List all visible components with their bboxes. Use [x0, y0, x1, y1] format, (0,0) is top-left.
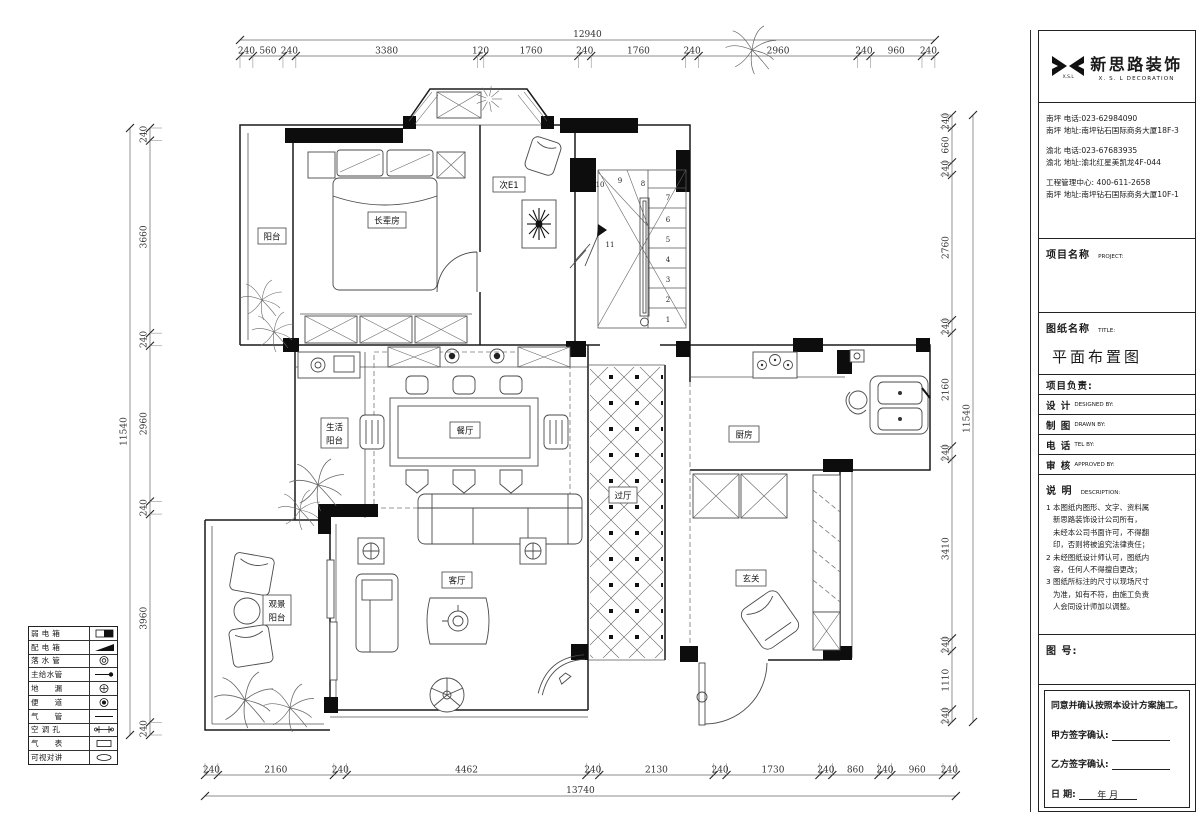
legend-row: 空 调 孔: [29, 723, 117, 737]
note-line: 印，否则将被追究法律责任；: [1046, 539, 1188, 551]
legend-table: 弱 电 箱配 电 箱落 水 管主给水管地 漏便 道气 管空 调 孔气 表可视对讲: [28, 626, 118, 765]
project-label: 项目名称: [1046, 250, 1090, 261]
stair-number: 1: [666, 316, 670, 324]
floor-drain-icon: [89, 682, 117, 695]
room-label-dining: 餐厅: [456, 427, 474, 437]
legend-label: 主给水管: [29, 669, 89, 680]
legend-row: 地 漏: [29, 681, 117, 695]
legend-row: 配 电 箱: [29, 640, 117, 654]
dim-segment: 240: [942, 160, 952, 177]
title-block: X.S.L 新思路装饰 X. S. L DECORATION 南坪 电话:023…: [1038, 30, 1196, 812]
legend-row: 可视对讲: [29, 750, 117, 764]
confirm-statement: 同意并确认按照本设计方案施工。: [1051, 698, 1183, 711]
date-label: 日 期:: [1051, 787, 1076, 800]
dim-segment: 240: [711, 766, 728, 776]
company-name: 新思路装饰: [1090, 51, 1183, 75]
dim-segment: 240: [576, 47, 593, 57]
dim-segment: 2160: [264, 766, 287, 776]
wardrobe: [305, 316, 467, 343]
drawing-name-section: 图纸名称 TITLE: 平面布置图: [1039, 313, 1195, 375]
room-label-balcony-n: 阳台: [263, 232, 280, 243]
stair-number: 2: [666, 296, 670, 304]
room-label-kitchen: 厨房: [735, 430, 752, 441]
armchair-e1: [523, 135, 562, 177]
weak-current-box-icon: [89, 627, 117, 640]
legend-label: 弱 电 箱: [29, 628, 89, 639]
stair-number: 3: [666, 276, 670, 284]
dim-segment: 3660: [140, 225, 150, 248]
title-block-row: 电 话TEL BY:: [1039, 435, 1195, 455]
kitchen-sink: [846, 376, 930, 434]
contact-line: 渝北 电话:023-67683935: [1046, 145, 1188, 157]
figure-number-section: 图 号:: [1039, 635, 1195, 685]
stair-number: 8: [641, 180, 645, 188]
room-label-living: 客厅: [448, 576, 466, 587]
legend-label: 气 表: [29, 738, 89, 749]
dim-segment: 240: [140, 499, 150, 516]
room-label-line: 生活: [326, 422, 344, 433]
title-block-row: 制 图DRAWN BY:: [1039, 415, 1195, 435]
room-label-hall: 过厅: [614, 491, 632, 502]
project-label-en: PROJECT:: [1098, 254, 1123, 260]
contact-group: 渝北 电话:023-67683935渝北 地址:渝北红星美凯龙4F-044: [1046, 145, 1188, 168]
note-line: 2 未经图纸设计师认可，图纸内: [1046, 552, 1188, 564]
date-line[interactable]: 年 月: [1079, 788, 1137, 800]
row-label-en: DESIGNED BY:: [1074, 402, 1113, 408]
ac-hole-icon: [89, 724, 117, 737]
dim-total: 11540: [963, 404, 973, 433]
dim-segment: 240: [140, 720, 150, 737]
gas-meter-icon: [89, 737, 117, 750]
figure-no-label: 图 号:: [1046, 646, 1077, 657]
drawing-label: 图纸名称: [1046, 324, 1090, 335]
party-b-signature-line[interactable]: [1112, 758, 1170, 770]
dim-segment: 660: [942, 136, 952, 153]
stair-number: 7: [666, 194, 670, 202]
contact-group: 工程管理中心: 400-611-2658南坪 地址:南坪钻石国际商务大厦10F-…: [1046, 177, 1188, 200]
dim-segment: 240: [684, 47, 701, 57]
stove: [753, 352, 797, 378]
confirmation-section: 同意并确认按照本设计方案施工。 甲方签字确认: 乙方签字确认: 日 期: 年 月: [1039, 685, 1195, 813]
company-logo: X.S.L 新思路装饰 X. S. L DECORATION: [1039, 31, 1195, 103]
legend-row: 主给水管: [29, 667, 117, 681]
row-label-cn: 设 计: [1046, 398, 1071, 412]
toilet-drain-icon: [89, 696, 117, 709]
legend-label: 便 道: [29, 697, 89, 708]
company-name-en: X. S. L DECORATION: [1098, 76, 1174, 82]
dim-segment: 240: [140, 125, 150, 142]
row-label-en: DRAWN BY:: [1074, 422, 1105, 428]
legend-label: 可视对讲: [29, 752, 89, 763]
contact-line: 南坪 地址:南坪钻石国际商务大厦10F-1: [1046, 189, 1188, 201]
legend-label: 气 管: [29, 711, 89, 722]
stair-step-numbers: 1234567891011: [596, 177, 671, 324]
legend-row: 落 水 管: [29, 654, 117, 668]
notes-label: 说 明: [1046, 486, 1072, 497]
stair-number: 5: [666, 236, 670, 244]
party-a-label: 甲方签字确认:: [1051, 728, 1109, 741]
dim-segment: 240: [941, 766, 958, 776]
party-a-signature-line[interactable]: [1112, 729, 1170, 741]
stair-number: 6: [666, 216, 671, 224]
drawing-title: 平面布置图: [1052, 346, 1188, 367]
plant-icon: [240, 280, 282, 320]
dim-segment: 240: [920, 47, 937, 57]
room-label-line: 阳台: [326, 436, 343, 447]
dim-segment: 1730: [762, 766, 785, 776]
dim-segment: 240: [876, 766, 893, 776]
row-label-cn: 电 话: [1046, 438, 1071, 452]
dim-total: 12940: [573, 30, 602, 40]
dim-segment: 2960: [140, 412, 150, 435]
dim-segment: 560: [259, 47, 276, 57]
dim-segment: 240: [942, 636, 952, 653]
downpipe-icon: [89, 655, 117, 668]
note-line: 1 本图纸内图形、文字、资料属: [1046, 502, 1188, 514]
note-line: 人会同设计师加以调整。: [1046, 601, 1188, 613]
dim-segment: 960: [888, 47, 905, 57]
title-block-row: 审 核APPROVED BY:: [1039, 455, 1195, 475]
dim-segment: 240: [817, 766, 834, 776]
project-name-section: 项目名称 PROJECT:: [1039, 239, 1195, 313]
legend-label: 配 电 箱: [29, 642, 89, 653]
leader-label: 项目负责:: [1046, 378, 1093, 392]
dim-segment: 2960: [767, 47, 790, 57]
dim-segment: 240: [332, 766, 349, 776]
dim-segment: 860: [847, 766, 864, 776]
stair-number: 9: [618, 177, 622, 185]
dim-total: 11540: [120, 417, 130, 446]
dim-segment: 960: [909, 766, 926, 776]
dim-segment: 3960: [140, 607, 150, 630]
dim-segment: 1110: [942, 668, 952, 691]
distribution-box-icon: [89, 641, 117, 654]
note-line: 3 图纸所标注的尺寸以现场尺寸: [1046, 576, 1188, 588]
balcony-chair: [228, 624, 273, 668]
legend-label: 地 漏: [29, 683, 89, 694]
room-label-entry: 玄关: [742, 574, 760, 585]
contact-line: 南坪 电话:023-62984090: [1046, 113, 1188, 125]
dim-segment: 1760: [627, 47, 650, 57]
legend-row: 弱 电 箱: [29, 627, 117, 640]
contact-line: 渝北 地址:渝北红星美凯龙4F-044: [1046, 157, 1188, 169]
room-label-bedroom-e1: 次E1: [499, 180, 518, 191]
note-line: 未经本公司书面许可，不得翻: [1046, 527, 1188, 539]
tea-table: [427, 598, 489, 644]
row-label-cn: 审 核: [1046, 458, 1071, 472]
dim-total: 13740: [566, 786, 595, 796]
dim-segment: 2760: [942, 236, 952, 259]
party-b-label: 乙方签字确认:: [1051, 757, 1109, 770]
dim-segment: 120: [472, 47, 489, 57]
plant-icon: [264, 684, 314, 732]
legend-row: 便 道: [29, 695, 117, 709]
drawing-label-en: TITLE:: [1098, 328, 1115, 334]
video-intercom-icon: [89, 751, 117, 764]
dim-segment: 4462: [455, 766, 478, 776]
dim-segment: 3380: [375, 47, 398, 57]
contact-line: 工程管理中心: 400-611-2658: [1046, 177, 1188, 189]
dim-segment: 240: [855, 47, 872, 57]
room-label-line: 阳台: [268, 613, 285, 624]
stair-number: 11: [606, 241, 615, 249]
contact-group: 南坪 电话:023-62984090南坪 地址:南坪钻石国际商务大厦18F-3: [1046, 113, 1188, 136]
company-contacts: 南坪 电话:023-62984090南坪 地址:南坪钻石国际商务大厦18F-3渝…: [1039, 103, 1195, 239]
note-line: 新思路装饰设计公司所有，: [1046, 514, 1188, 526]
plant-icon: [289, 459, 344, 511]
row-label-cn: 制 图: [1046, 418, 1071, 432]
gas-pipe-icon: [89, 710, 117, 723]
title-block-row: 设 计DESIGNED BY:: [1039, 395, 1195, 415]
legend-row: 气 表: [29, 736, 117, 750]
sheet-border-line: [1030, 30, 1031, 812]
dim-segment: 2130: [645, 766, 668, 776]
floor-fan: [430, 678, 464, 712]
note-line: 容，任何人不得擅自更改；: [1046, 564, 1188, 576]
legend-row: 气 管: [29, 709, 117, 723]
plant-icon: [278, 490, 320, 530]
notes-label-en: DESCRIPTION:: [1081, 490, 1121, 496]
dim-segment: 240: [281, 47, 298, 57]
dim-segment: 240: [942, 707, 952, 724]
row-label-en: APPROVED BY:: [1074, 462, 1114, 468]
dim-segment: 240: [140, 331, 150, 348]
ceiling-fan-icon: [522, 200, 556, 248]
row-label-en: TEL BY:: [1074, 442, 1094, 448]
dim-segment: 240: [584, 766, 601, 776]
dim-segment: 2160: [942, 378, 952, 401]
balcony-chair: [229, 552, 275, 596]
dim-segment: 240: [942, 444, 952, 461]
room-label-elder-bedroom: 长辈房: [374, 216, 400, 227]
dim-segment: 240: [942, 318, 952, 335]
contact-line: 南坪 地址:南坪钻石国际商务大厦18F-3: [1046, 125, 1188, 137]
room-label-line: 观景: [268, 600, 285, 610]
dim-segment: 1760: [520, 47, 543, 57]
entry-door: [697, 663, 767, 725]
legend-label: 空 调 孔: [29, 724, 89, 735]
floor-plan-canvas: 2405602403380120176024017602402960240960…: [0, 0, 1030, 819]
main-water-pipe-icon: [89, 668, 117, 681]
logo-caption: X.S.L: [1063, 75, 1074, 80]
note-line: 为准，如有不符，由施工负责: [1046, 589, 1188, 601]
dim-segment: 240: [203, 766, 220, 776]
dim-segment: 3410: [942, 537, 952, 560]
legend-label: 落 水 管: [29, 655, 89, 666]
entry-armchair: [738, 588, 802, 653]
dim-segment: 240: [238, 47, 255, 57]
plant-icon: [214, 672, 273, 728]
signature-rows: 设 计DESIGNED BY:制 图DRAWN BY:电 话TEL BY:审 核…: [1039, 395, 1195, 475]
notes-section: 说 明 DESCRIPTION: 1 本图纸内图形、文字、资料属新思路装饰设计公…: [1039, 475, 1195, 635]
stair-number: 10: [596, 181, 605, 189]
stair-number: 4: [666, 256, 671, 264]
dim-segment: 240: [942, 112, 952, 129]
project-leader-row: 项目负责:: [1039, 375, 1195, 395]
